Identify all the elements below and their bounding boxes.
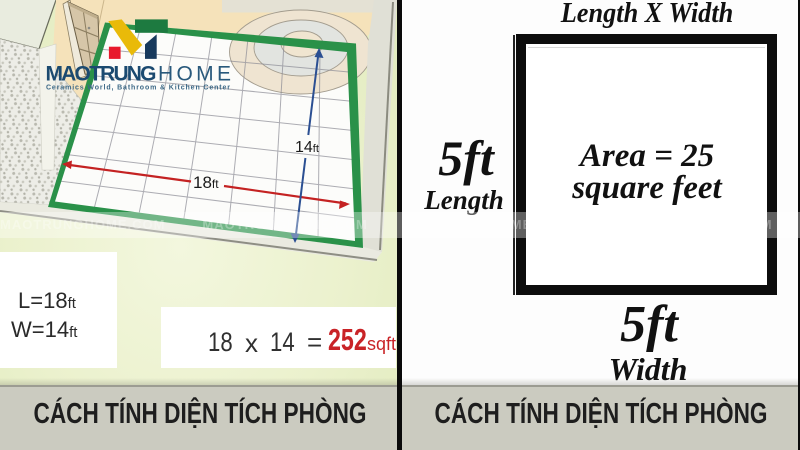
svg-text:MAOTRUNG: MAOTRUNG	[46, 63, 157, 86]
svg-text:Ceramics World, Bathroom & Kit: Ceramics World, Bathroom & Kitchen Cente…	[46, 85, 230, 92]
